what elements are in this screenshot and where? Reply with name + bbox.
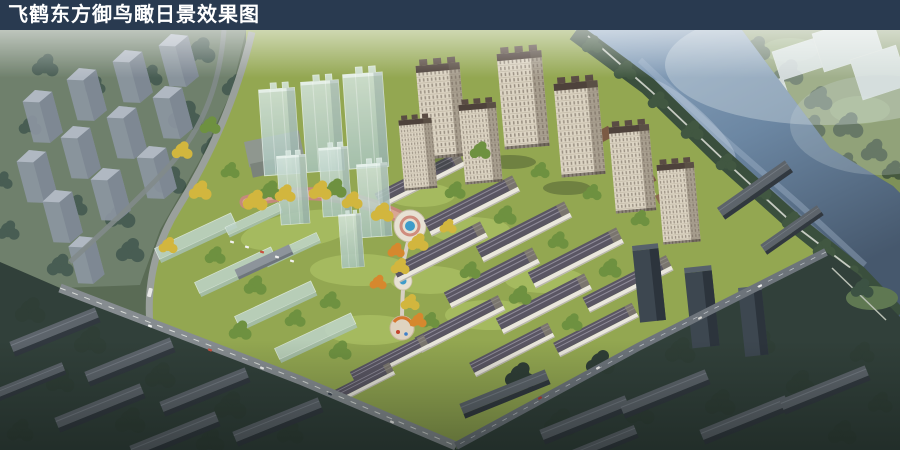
rendering-title: 飞鹤东方御鸟瞰日景效果图 <box>0 0 260 30</box>
viewport: 飞鹤东方御鸟瞰日景效果图 <box>0 0 900 450</box>
rendering-canvas <box>0 30 900 450</box>
title-bar: 飞鹤东方御鸟瞰日景效果图 <box>0 0 900 30</box>
playground <box>390 316 414 340</box>
rendering-svg <box>0 30 900 450</box>
